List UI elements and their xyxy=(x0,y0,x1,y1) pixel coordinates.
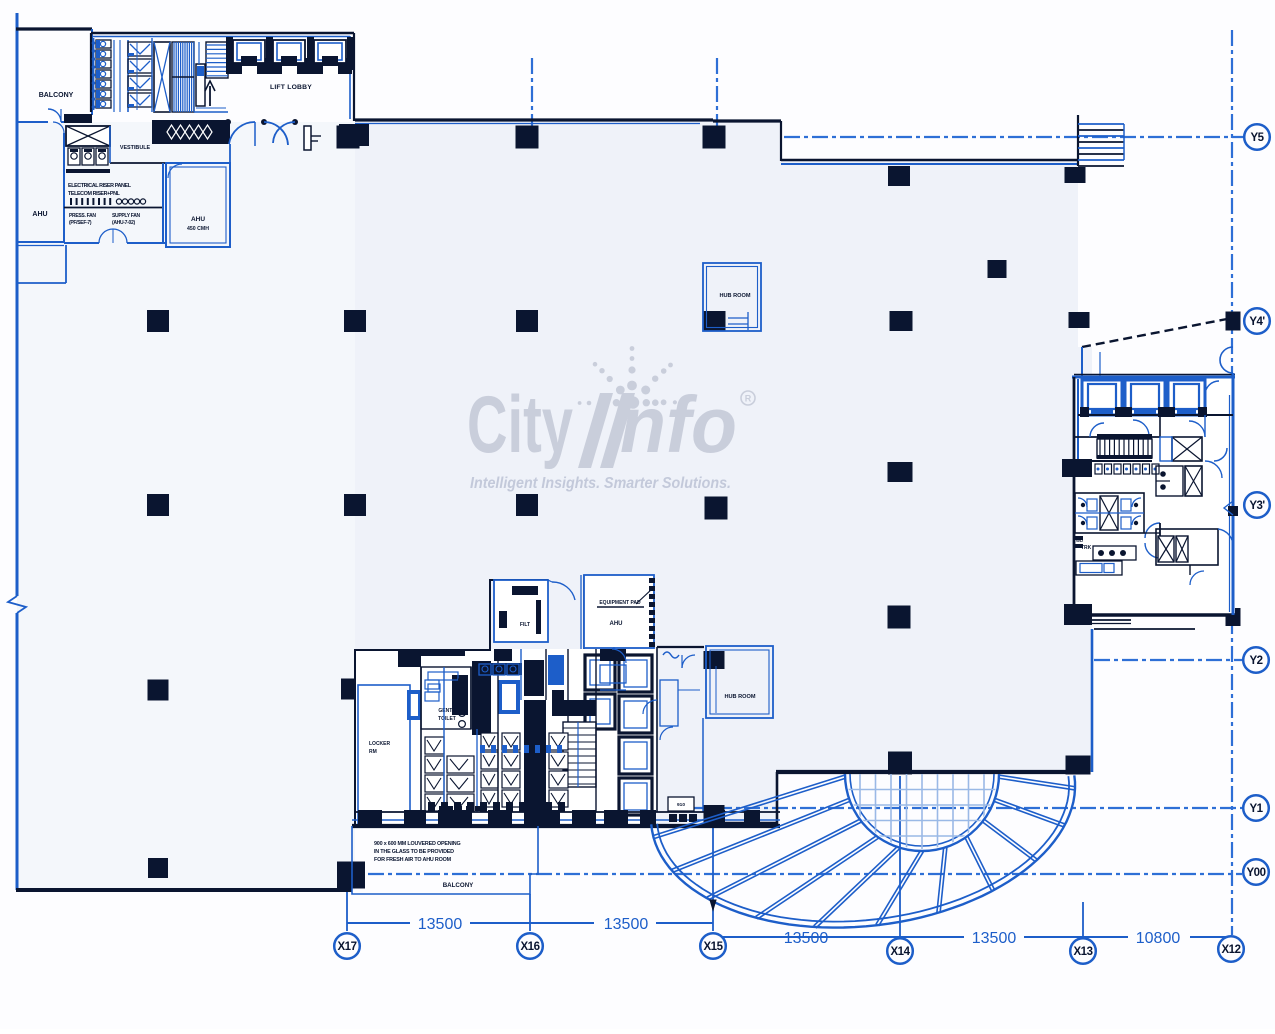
svg-text:X16: X16 xyxy=(521,941,540,953)
svg-text:SUPPLY FAN: SUPPLY FAN xyxy=(112,213,141,219)
svg-text:PRESS. FAN: PRESS. FAN xyxy=(69,213,96,219)
svg-text:GENTS: GENTS xyxy=(438,708,456,714)
svg-text:R: R xyxy=(745,394,752,404)
svg-text:AHU: AHU xyxy=(610,621,623,627)
svg-text:City: City xyxy=(467,380,573,470)
svg-text:13500: 13500 xyxy=(604,916,649,933)
svg-text:FOR FRESH AIR TO AHU ROOM: FOR FRESH AIR TO AHU ROOM xyxy=(374,857,452,863)
svg-text:LIFT LOBBY: LIFT LOBBY xyxy=(270,84,312,91)
svg-text:nfo: nfo xyxy=(620,380,737,469)
svg-text:BALCONY: BALCONY xyxy=(443,882,474,889)
svg-text:EQUIPMENT PAD: EQUIPMENT PAD xyxy=(599,600,641,606)
svg-text:LOCKER: LOCKER xyxy=(369,741,391,747)
svg-text:FILT: FILT xyxy=(520,622,530,628)
svg-text:(AHU-7-02): (AHU-7-02) xyxy=(112,220,135,226)
svg-text:WD: WD xyxy=(1076,538,1083,543)
svg-text:(PF/SEF-7): (PF/SEF-7) xyxy=(69,220,92,226)
svg-text:VESTIBULE: VESTIBULE xyxy=(120,145,151,151)
svg-text:13500: 13500 xyxy=(418,916,463,933)
svg-text:X17: X17 xyxy=(338,941,357,953)
svg-text:IN THE GLASS TO BE PROVIDED: IN THE GLASS TO BE PROVIDED xyxy=(374,849,454,855)
svg-text:RM: RM xyxy=(369,749,377,755)
svg-text:Y2: Y2 xyxy=(1249,655,1262,667)
svg-text:Y00: Y00 xyxy=(1247,867,1266,879)
svg-text:X13: X13 xyxy=(1074,946,1093,958)
svg-text:Y1: Y1 xyxy=(1249,803,1263,815)
svg-text:13500: 13500 xyxy=(784,930,829,947)
svg-text:HUB ROOM: HUB ROOM xyxy=(719,293,750,299)
svg-text:Y5: Y5 xyxy=(1250,132,1264,144)
svg-text:450 CMH: 450 CMH xyxy=(187,226,209,232)
svg-text:AHU: AHU xyxy=(32,211,47,218)
svg-text:ELECTRICAL RISER PANEL: ELECTRICAL RISER PANEL xyxy=(68,183,132,189)
svg-text:AHU: AHU xyxy=(191,216,205,223)
svg-text:X15: X15 xyxy=(704,941,724,953)
svg-text:Y4': Y4' xyxy=(1249,316,1265,328)
svg-text:HUB ROOM: HUB ROOM xyxy=(724,694,755,700)
svg-text:Intelligent Insights. Smarter: Intelligent Insights. Smarter Solutions. xyxy=(470,475,731,492)
svg-text:900 x 600 MM LOUVERED OPENING: 900 x 600 MM LOUVERED OPENING xyxy=(374,841,460,847)
svg-text:BALCONY: BALCONY xyxy=(39,92,74,99)
svg-text:10800: 10800 xyxy=(1136,930,1181,947)
svg-text:TELECOM RISER+PNL: TELECOM RISER+PNL xyxy=(68,191,121,197)
svg-text:X12: X12 xyxy=(1222,944,1241,956)
svg-text:TOILET: TOILET xyxy=(438,716,456,722)
svg-text:Y3': Y3' xyxy=(1249,500,1265,512)
svg-text:X14: X14 xyxy=(891,946,911,958)
svg-text:910: 910 xyxy=(677,802,685,808)
svg-text:13500: 13500 xyxy=(972,930,1017,947)
